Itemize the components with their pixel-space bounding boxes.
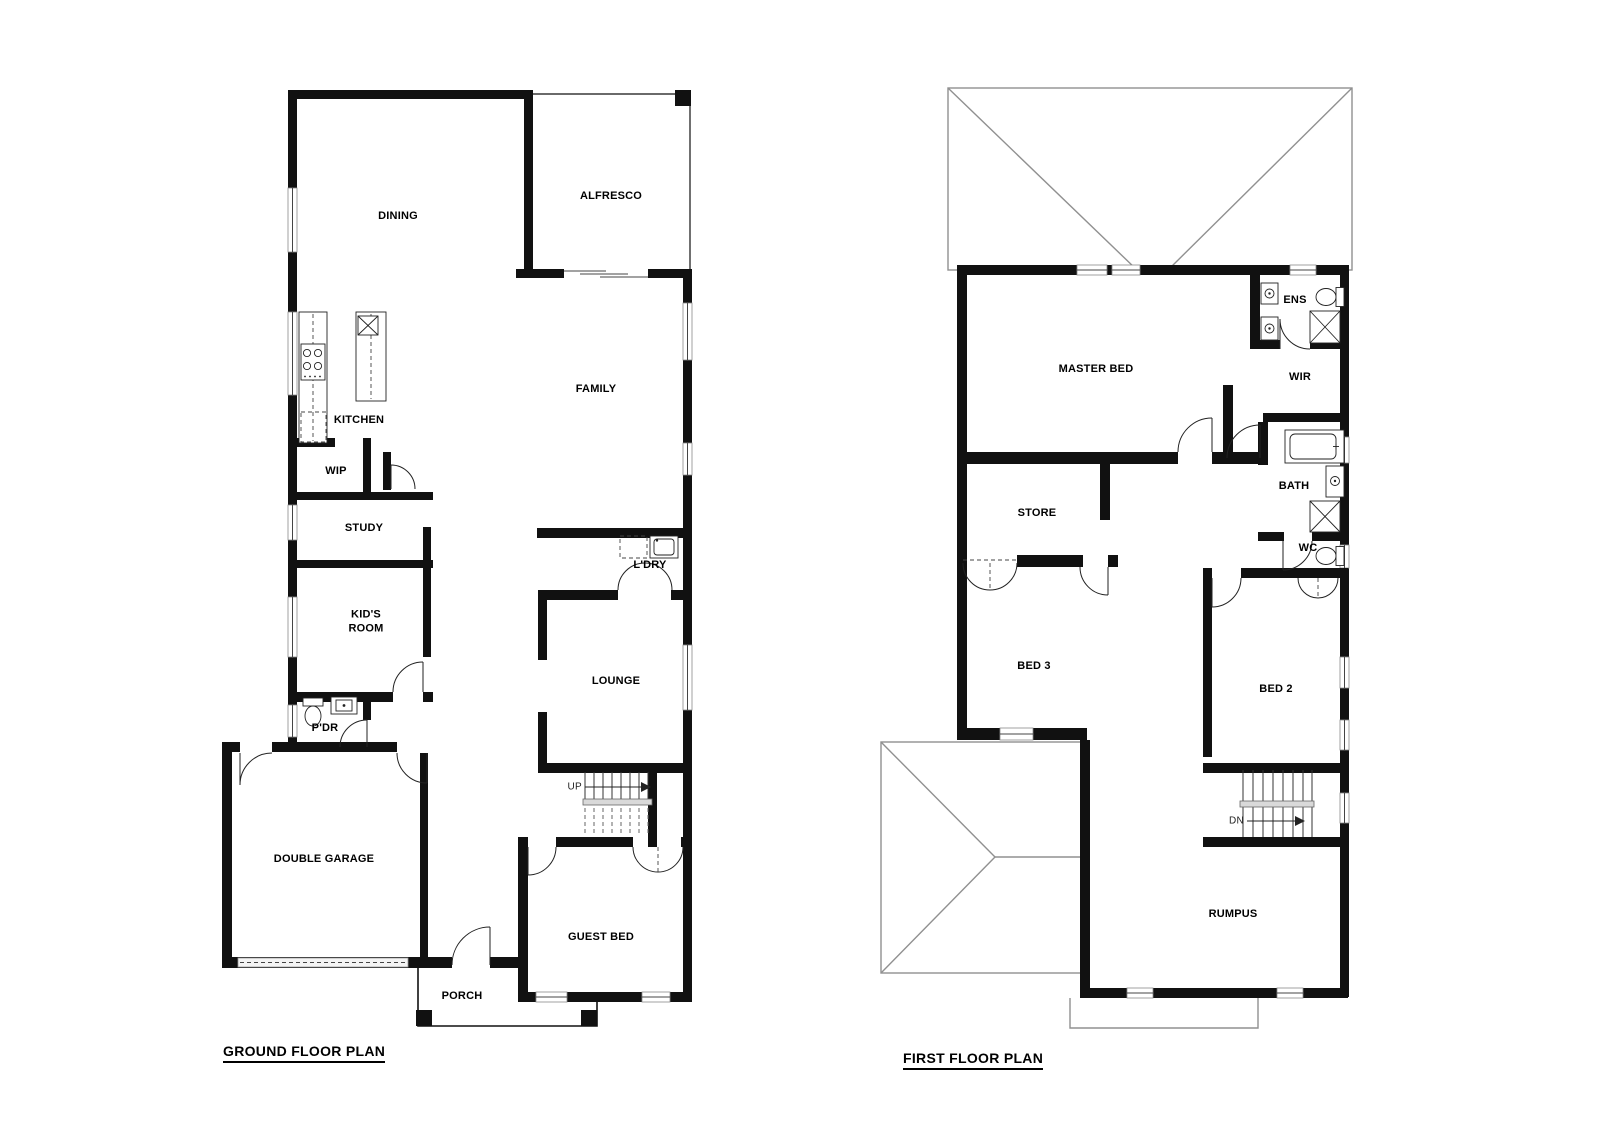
room-label-alfresco: ALFRESCO <box>580 190 642 204</box>
up-arrow-icon <box>585 782 651 792</box>
first-floor-title: FIRST FLOOR PLAN <box>903 1050 1043 1070</box>
ensuite-fixtures <box>1261 283 1344 343</box>
pantry-door-icon <box>391 465 415 489</box>
bathtub-icon <box>1285 430 1344 463</box>
garage-door <box>238 958 408 967</box>
toilet-icon <box>1316 547 1344 566</box>
ground-windows <box>288 188 692 1002</box>
room-label-bed2: BED 2 <box>1259 683 1292 697</box>
floor-plan-sheet: DINING ALFRESCO FAMILY KITCHEN WIP STUDY… <box>0 0 1600 1132</box>
room-label-store: STORE <box>1018 507 1057 521</box>
bed3-door-icon <box>1080 567 1108 595</box>
room-label-kitchen: KITCHEN <box>334 414 384 428</box>
room-label-lounge: LOUNGE <box>592 675 640 689</box>
garage-side-door-icon <box>240 753 272 785</box>
vanity-icon <box>1326 466 1344 497</box>
roof-outline-porch <box>1070 998 1258 1028</box>
first-stairs <box>1240 770 1314 837</box>
toilet-icon <box>1316 288 1344 307</box>
guest-robe-doors-icon <box>633 847 683 872</box>
laundry-tub-icon <box>650 536 678 558</box>
guest-bed-door-icon <box>528 847 556 875</box>
room-label-rumpus: RUMPUS <box>1209 908 1258 922</box>
room-label-master-bed: MASTER BED <box>1059 363 1134 377</box>
ground-stairs <box>583 772 652 836</box>
ground-floor-title: GROUND FLOOR PLAN <box>223 1043 385 1063</box>
stair-rail <box>1240 801 1314 807</box>
room-label-family: FAMILY <box>576 383 617 397</box>
appliance-space <box>620 536 647 558</box>
floor-plan-drawing <box>0 0 1600 1132</box>
master-bed-door-icon <box>1178 418 1212 452</box>
sink-icon <box>358 316 378 335</box>
room-label-dining: DINING <box>378 210 418 224</box>
room-label-ldry: L'DRY <box>633 559 666 573</box>
ground-interior-walls <box>288 438 692 847</box>
ground-floor-plan <box>222 90 692 1026</box>
room-label-wir: WIR <box>1289 371 1311 385</box>
stair-direction-dn: DN <box>1229 816 1244 827</box>
bed3-robe-doors-icon <box>963 560 1017 590</box>
room-label-guest-bed: GUEST BED <box>568 931 634 945</box>
room-label-pdr: P'DR <box>312 722 339 736</box>
kids-room-door-icon <box>393 662 423 692</box>
room-label-study: STUDY <box>345 522 383 536</box>
porch-post <box>581 1010 597 1026</box>
laundry-fixtures <box>620 536 678 558</box>
cooktop-icon <box>301 344 325 380</box>
stair-direction-up: UP <box>568 782 583 793</box>
roof-outline-garage <box>881 742 1082 973</box>
first-floor-plan <box>881 88 1352 1028</box>
room-label-porch: PORCH <box>442 990 483 1004</box>
first-interior-walls <box>957 265 1348 847</box>
stacker-door-icon <box>564 271 648 277</box>
vanity-icon <box>1261 283 1278 304</box>
room-label-wip: WIP <box>325 465 346 479</box>
stair-rail <box>583 799 652 805</box>
room-label-bath: BATH <box>1279 480 1310 494</box>
room-label-kids-room: KID'S ROOM <box>348 608 383 636</box>
basin-icon <box>331 697 357 714</box>
vanity-icon <box>1261 317 1278 340</box>
dn-arrow-icon <box>1247 816 1305 826</box>
room-label-ens: ENS <box>1283 294 1306 308</box>
wc-fixtures <box>1316 547 1344 566</box>
room-label-bed3: BED 3 <box>1017 660 1050 674</box>
bed2-robe-doors-icon <box>1298 578 1338 598</box>
roof-outline-upper <box>948 88 1352 270</box>
porch-post <box>416 1010 432 1026</box>
room-label-double-garage: DOUBLE GARAGE <box>274 853 374 867</box>
shower-icon <box>1310 311 1340 343</box>
shower-icon <box>1310 501 1340 532</box>
front-door-icon <box>452 927 490 965</box>
bed2-door-icon <box>1212 578 1241 607</box>
ensuite-door-icon <box>1280 319 1310 349</box>
room-label-wc: WC <box>1299 542 1318 556</box>
